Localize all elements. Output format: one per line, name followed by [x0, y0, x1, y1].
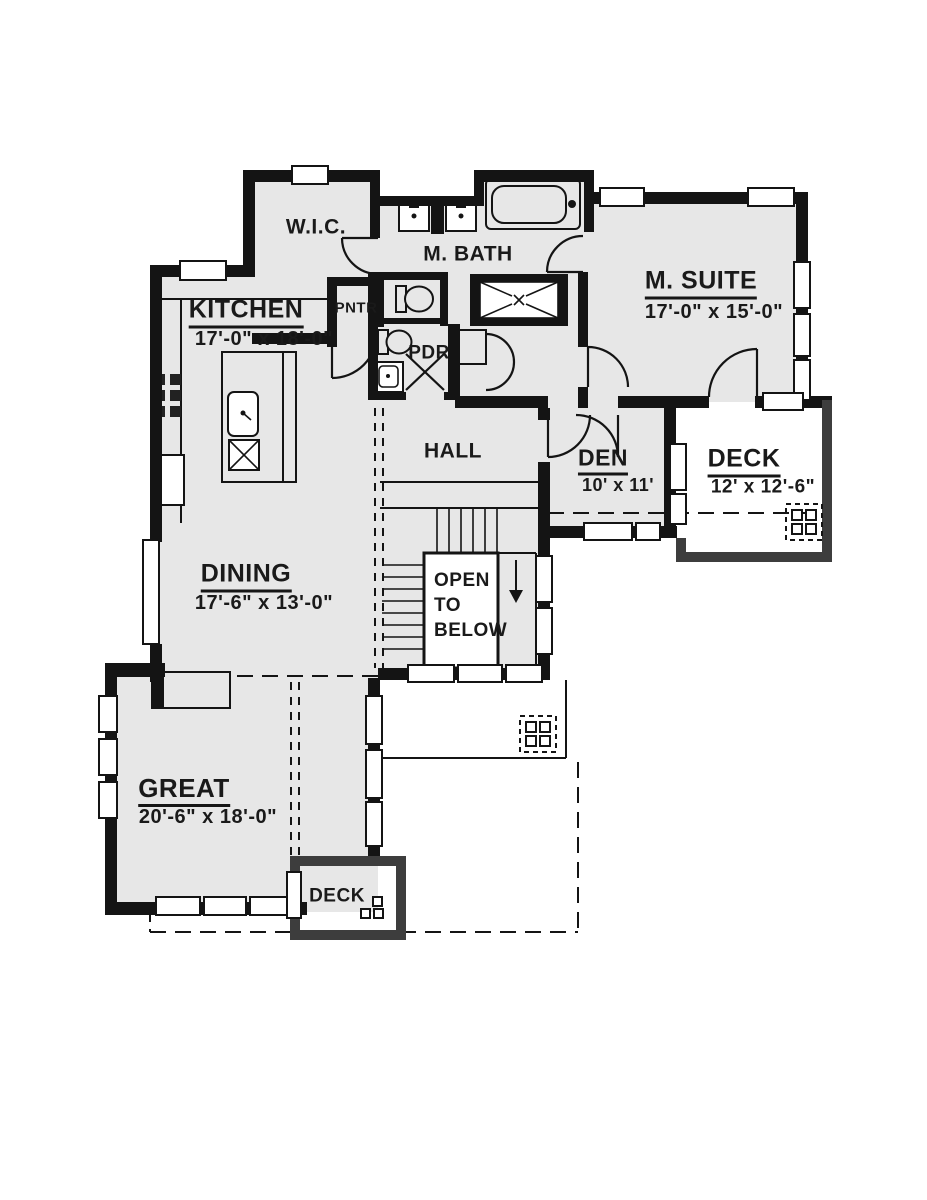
room-label-msuite: M. SUITE [645, 269, 757, 300]
open-to-below-label: OPEN TO BELOW [434, 568, 507, 643]
room-label-deck-bottom: DECK [309, 887, 365, 906]
room-dims-great: 20'-6" x 18'-0" [139, 807, 277, 827]
room-dims-msuite: 17'-0" x 15'-0" [645, 302, 783, 322]
room-dims-kitchen: 17'-0" x 18'-0" [195, 329, 333, 349]
room-label-deck-right: DECK [708, 447, 781, 478]
floor-plan: W.I.C. M. BATH M. SUITE 17'-0" x 15'-0" … [0, 0, 927, 1200]
room-label-pntr: PNTR [335, 301, 378, 316]
shower-fixture [480, 282, 558, 318]
room-label-pdr: PDR [408, 344, 450, 363]
bathtub-fixture [486, 179, 580, 229]
room-dims-dining: 17'-6" x 13'-0" [195, 593, 333, 613]
kitchen-island [222, 352, 296, 482]
open-to-below-line2: TO [434, 593, 507, 618]
column-marker-patio [520, 716, 556, 752]
powder-vanity-fixture [375, 362, 403, 392]
room-label-mbath: M. BATH [423, 244, 512, 265]
room-dims-den: 10' x 11' [582, 476, 654, 494]
room-dims-deck-right: 12' x 12'-6" [711, 478, 815, 497]
room-label-kitchen: KITCHEN [189, 298, 304, 329]
room-label-dining: DINING [201, 562, 292, 593]
open-to-below-line3: BELOW [434, 618, 507, 643]
fireplace-fixture [152, 672, 230, 708]
open-to-below-line1: OPEN [434, 568, 507, 593]
column-marker-deck-right [786, 504, 822, 540]
room-label-hall: HALL [424, 441, 482, 462]
room-label-den: DEN [578, 447, 628, 476]
room-label-wic: W.I.C. [286, 217, 346, 238]
patio-edges [380, 680, 566, 758]
room-label-great: GREAT [138, 775, 230, 807]
